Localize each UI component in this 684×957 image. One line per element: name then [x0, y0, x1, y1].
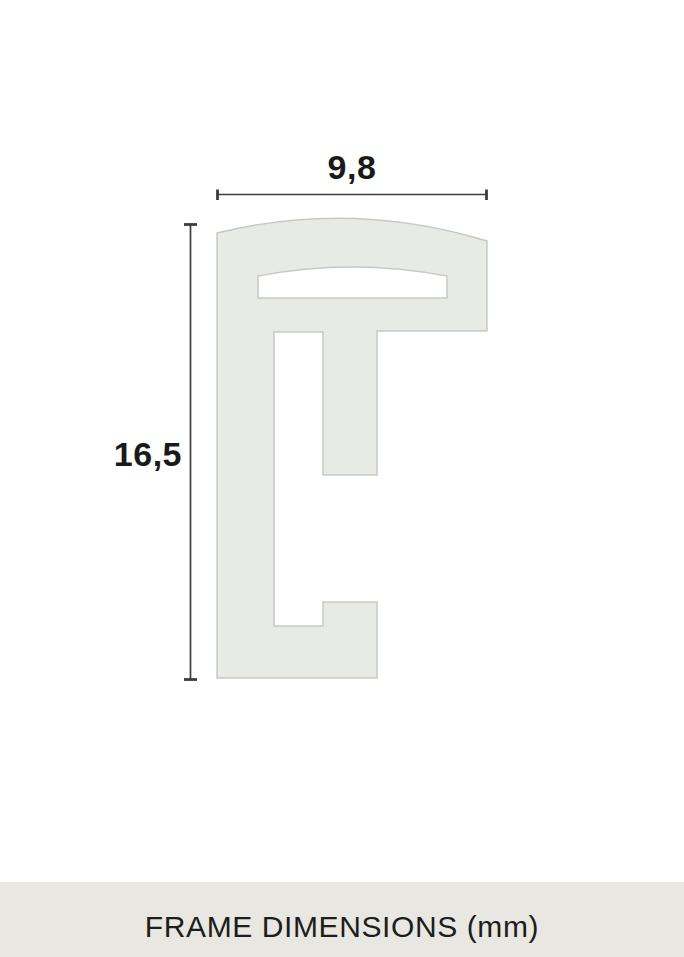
frame-profile-diagram: 9,8 16,5 FRAME DIMENSIONS (mm) — [0, 0, 684, 957]
profile-diagram-svg — [0, 0, 684, 957]
footer-title: FRAME DIMENSIONS (mm) — [145, 912, 539, 942]
frame-profile-shape — [217, 218, 487, 678]
height-dimension-line — [184, 224, 197, 680]
height-dimension-label: 16,5 — [88, 437, 182, 471]
footer-bar: FRAME DIMENSIONS (mm) — [0, 882, 684, 957]
width-dimension-label: 9,8 — [328, 150, 377, 184]
width-dimension-line — [217, 190, 487, 201]
